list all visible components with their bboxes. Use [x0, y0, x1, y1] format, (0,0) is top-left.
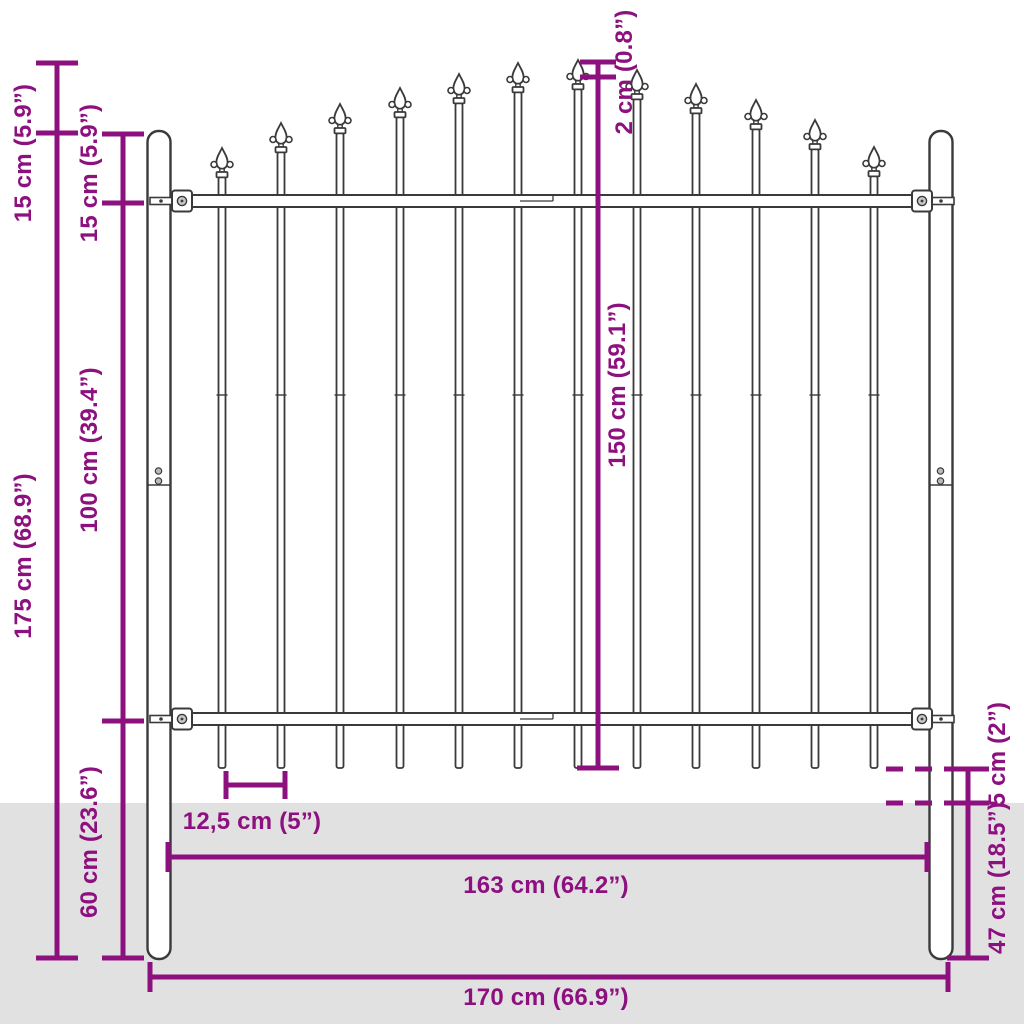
picket	[448, 74, 470, 768]
picket	[567, 60, 589, 768]
dim-label-picket-bottom-to-ground: 5 cm (2”)	[986, 702, 1010, 807]
dim-line-picket-spacing	[226, 771, 285, 799]
fence-diagram-drawing	[0, 0, 1024, 1024]
dim-label-picket-spacing: 12,5 cm (5”)	[183, 810, 321, 834]
dim-label-picket-height: 150 cm (59.1”)	[606, 302, 630, 468]
dim-label-between-rails: 100 cm (39.4”)	[78, 367, 102, 533]
picket	[863, 147, 885, 768]
post-screw	[155, 468, 161, 474]
picket	[685, 84, 707, 768]
dim-label-post-above-spears: 15 cm (5.9”)	[12, 84, 36, 222]
dim-label-bottom-rail-to-post-end: 60 cm (23.6”)	[78, 766, 102, 918]
rail-brackets	[150, 191, 954, 730]
post-screw	[937, 478, 943, 484]
post-screw	[155, 478, 161, 484]
picket	[270, 123, 292, 768]
diagram-canvas: 15 cm (5.9”) 15 cm (5.9”) 100 cm (39.4”)…	[0, 0, 1024, 1024]
post-screw	[937, 468, 943, 474]
picket	[507, 63, 529, 768]
picket	[211, 148, 233, 768]
dim-label-inner-width: 163 cm (64.2”)	[463, 874, 629, 898]
picket	[804, 120, 826, 768]
dim-label-post-top-to-top-rail: 15 cm (5.9”)	[78, 104, 102, 242]
left-post	[148, 131, 171, 959]
dim-label-total-width: 170 cm (66.9”)	[463, 986, 629, 1010]
right-post	[930, 131, 953, 959]
dim-label-post-length: 175 cm (68.9”)	[12, 473, 36, 639]
bottom-rail	[177, 713, 920, 725]
top-rail	[177, 195, 920, 207]
dim-label-spear-tip-offset: 2 cm (0.8”)	[613, 10, 637, 135]
pickets	[211, 60, 885, 768]
dim-label-below-ground-depth: 47 cm (18.5”)	[986, 802, 1010, 954]
picket	[389, 88, 411, 768]
